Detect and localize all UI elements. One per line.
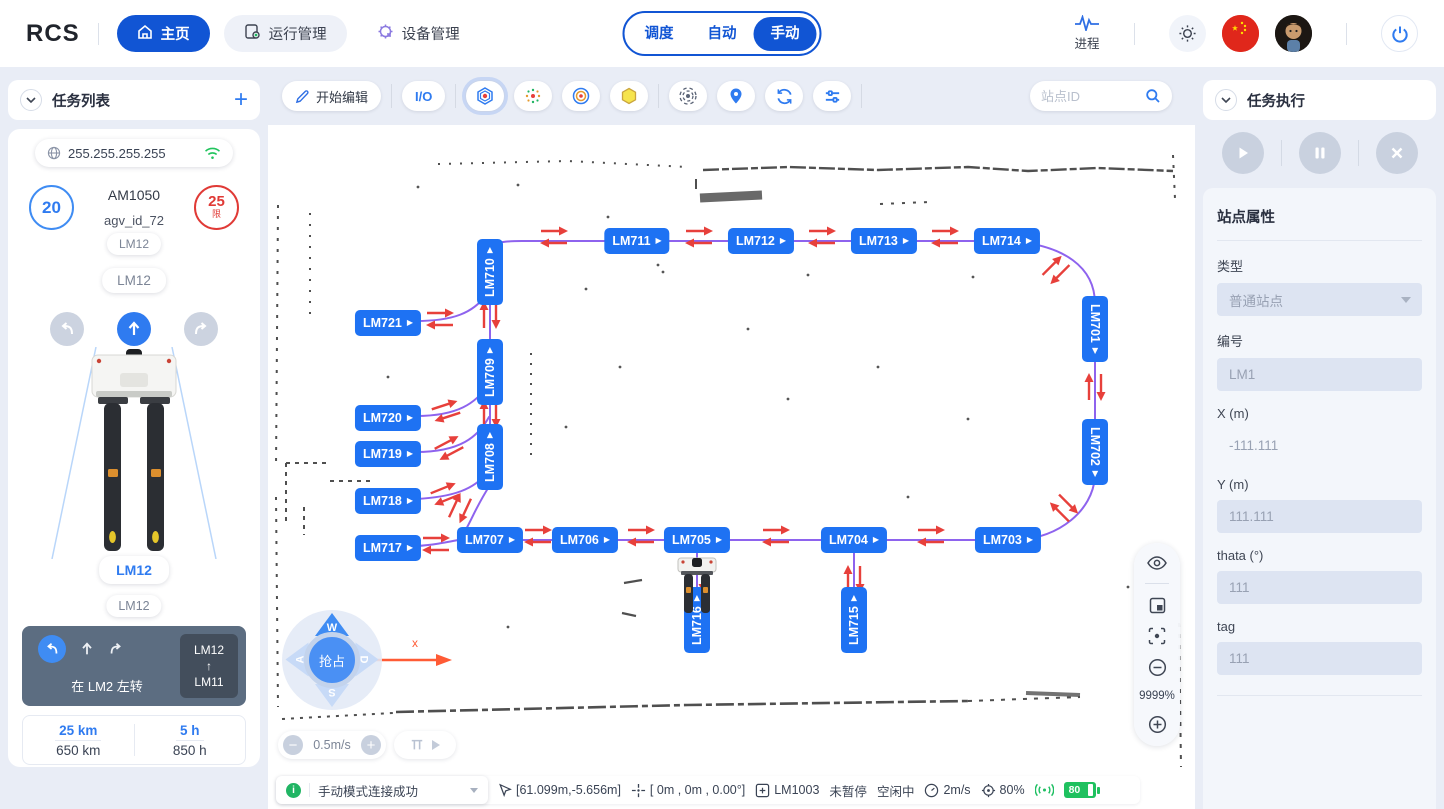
- target-rings-icon: [571, 86, 591, 106]
- field-label: X (m): [1217, 406, 1422, 421]
- station-arrow-icon: ▶: [1027, 536, 1033, 544]
- hexagon-node-icon: [475, 86, 495, 106]
- map-panel: x LM711▶LM712▶LM713▶LM714▶LM710▶LM721▶LM…: [268, 67, 1195, 809]
- seize-control-button[interactable]: 抢占: [304, 632, 360, 688]
- pause-button[interactable]: [1299, 132, 1341, 174]
- station-lm720[interactable]: LM720▶: [355, 405, 421, 431]
- gear-icon: [377, 23, 394, 44]
- language-flag-button[interactable]: [1222, 15, 1259, 52]
- home-icon: [137, 24, 153, 44]
- trip-hours: 5 h: [176, 723, 204, 741]
- station-lm714[interactable]: LM714▶: [974, 228, 1040, 254]
- map-view-controls: 9999%: [1134, 543, 1180, 746]
- route-to: LM11: [194, 674, 223, 690]
- station-properties-panel: 站点属性 类型普通站点编号LM1X (m)-111.111Y (m)111.11…: [1203, 188, 1436, 809]
- route-box: LM12 ↑ LM11: [180, 634, 238, 698]
- left-sidebar: 任务列表 + 255.255.255.255 20 25限 AM1050 agv…: [0, 67, 268, 809]
- route-from: LM12: [194, 642, 224, 658]
- station-label: LM719: [363, 447, 402, 461]
- total-distance: 650 km: [56, 743, 100, 758]
- station-lm706[interactable]: LM706▶: [552, 527, 618, 553]
- panel-title: 站点属性: [1217, 206, 1422, 227]
- turn-left-button[interactable]: [50, 312, 84, 346]
- station-arrow-icon: ▶: [1026, 237, 1032, 245]
- lidar-button[interactable]: [669, 81, 707, 111]
- hint-straight-icon: [79, 641, 95, 657]
- station-lm704[interactable]: LM704▶: [821, 527, 887, 553]
- station-arrow-icon: ▶: [509, 536, 515, 544]
- refresh-icon: [775, 87, 794, 106]
- nav-devices[interactable]: 设备管理: [357, 15, 480, 52]
- task-exec-controls: [1203, 124, 1436, 182]
- station-arrow-icon: ▶: [850, 595, 858, 601]
- play-icon: [1235, 145, 1251, 161]
- localization-quality: 80%: [981, 783, 1025, 798]
- go-straight-button[interactable]: [117, 312, 151, 346]
- nav-operations-label: 运行管理: [269, 23, 327, 44]
- station-lm715[interactable]: LM715▶: [841, 587, 867, 653]
- task-exec-title: 任务执行: [1247, 90, 1305, 111]
- zoom-level: 9999%: [1139, 690, 1175, 702]
- station-arrow-icon: ▶: [407, 544, 413, 552]
- battery-indicator: 80: [1064, 782, 1096, 798]
- layer-target-button[interactable]: [562, 81, 600, 111]
- station-arrow-icon: ▶: [903, 237, 909, 245]
- station-arrow-icon: ▶: [407, 450, 413, 458]
- app-logo: RCS: [26, 20, 80, 48]
- vehicle-card: 255.255.255.255 20 25限 AM1050 agv_id_72 …: [8, 129, 260, 767]
- refresh-button[interactable]: [765, 81, 803, 111]
- field-label: tag: [1217, 619, 1422, 634]
- field-input-4[interactable]: 111: [1217, 571, 1422, 604]
- station-lm709[interactable]: LM709▶: [477, 339, 503, 405]
- station-arrow-icon: ▶: [486, 432, 494, 438]
- avatar-icon: [1275, 15, 1312, 52]
- chevron-down-icon: [1221, 97, 1231, 103]
- search-icon[interactable]: [1145, 88, 1161, 104]
- station-label: LM709: [483, 358, 497, 397]
- manual-joystick: W A D S 抢占: [282, 610, 382, 710]
- station-lm717[interactable]: LM717▶: [355, 535, 421, 561]
- speed-status: 2m/s: [924, 783, 970, 798]
- ip-address: 255.255.255.255: [68, 146, 197, 161]
- status-bar: i 手动模式连接成功 [61.099m,-5.656m] [ 0m , 0m ,…: [276, 776, 1140, 804]
- station-arrow-icon: ▶: [486, 347, 494, 353]
- mode-status-text: 手动模式连接成功: [318, 781, 462, 800]
- crosshair-icon: [631, 783, 646, 798]
- collapse-chevron[interactable]: [1215, 89, 1237, 111]
- field-label: thata (°): [1217, 548, 1422, 563]
- add-task-button[interactable]: +: [234, 90, 248, 110]
- turn-right-icon: [192, 320, 210, 338]
- station-arrow-icon: ▶: [716, 536, 722, 544]
- station-lm702[interactable]: LM702▶: [1082, 419, 1108, 485]
- nav-home[interactable]: 主页: [117, 15, 210, 52]
- station-label: LM705: [672, 533, 711, 547]
- robot-pose: [ 0m , 0m , 0.00°]: [631, 783, 745, 798]
- nav-home-label: 主页: [161, 23, 190, 44]
- field-label: 类型: [1217, 256, 1422, 275]
- globe-icon: [47, 146, 61, 160]
- station-lm703[interactable]: LM703▶: [975, 527, 1041, 553]
- station-label: LM707: [465, 533, 504, 547]
- layer-pointcloud-button[interactable]: [514, 81, 552, 111]
- turn-instruction: 在 LM2 左转: [32, 676, 182, 695]
- field-label: 编号: [1217, 331, 1422, 350]
- monitor-gear-icon: [244, 23, 261, 44]
- station-lm713[interactable]: LM713▶: [851, 228, 917, 254]
- station-tag-mid: LM12: [102, 268, 166, 293]
- hint-turn-left-icon: [38, 635, 66, 663]
- locate-pin-button[interactable]: [717, 81, 755, 111]
- center-focus-button[interactable]: [1148, 627, 1166, 645]
- vehicle-model: AM1050: [8, 187, 260, 203]
- station-label: LM708: [483, 443, 497, 482]
- info-icon: i: [286, 783, 301, 798]
- arrow-up-icon: [125, 320, 143, 338]
- plus-square-icon: [755, 783, 770, 798]
- power-icon: [1390, 24, 1410, 44]
- scatter-points-icon: [523, 86, 543, 106]
- station-arrow-icon: ▶: [656, 237, 662, 245]
- field-label: Y (m): [1217, 477, 1422, 492]
- station-arrow-icon: ▶: [407, 414, 413, 422]
- station-tag-small: LM12: [107, 233, 161, 255]
- station-label: LM713: [859, 234, 898, 248]
- field-input-1[interactable]: LM1: [1217, 358, 1422, 391]
- start-edit-label: 开始编辑: [316, 87, 368, 106]
- visibility-button[interactable]: [1147, 556, 1167, 570]
- chevron-down-icon: [26, 97, 36, 103]
- fork-control[interactable]: [394, 731, 456, 759]
- vehicle-ip: 255.255.255.255: [35, 139, 233, 167]
- map-toolbar: 开始编辑 I/O: [268, 67, 1195, 125]
- speed-increase-button[interactable]: +: [361, 735, 381, 755]
- chevron-down-icon: [470, 788, 478, 793]
- task-exec-header: 任务执行: [1203, 80, 1436, 120]
- station-label: LM711: [612, 234, 650, 248]
- cursor-position: [61.099m,-5.656m]: [498, 783, 621, 797]
- idle-state: 空闲中: [877, 781, 915, 800]
- pointer-icon: [498, 783, 512, 797]
- hint-turn-right-icon: [108, 641, 124, 657]
- start-edit-button[interactable]: 开始编辑: [282, 81, 381, 111]
- station-arrow-icon: ▶: [873, 536, 879, 544]
- station-label: LM702: [1088, 427, 1102, 466]
- speedometer-icon: [924, 783, 939, 798]
- field-input-5[interactable]: 111: [1217, 642, 1422, 675]
- speed-value: 0.5m/s: [313, 738, 351, 752]
- right-sidebar: 任务执行 站点属性 类型普通站点编号LM1X (m)-111.111Y (m)1…: [1195, 67, 1444, 809]
- radar-icon: [678, 86, 698, 106]
- field-plain-2: -111.111: [1217, 429, 1422, 462]
- user-avatar[interactable]: [1275, 15, 1312, 52]
- station-lm705[interactable]: LM705▶: [664, 527, 730, 553]
- nav-devices-label: 设备管理: [402, 23, 460, 44]
- divider: [1134, 23, 1135, 45]
- station-lm719[interactable]: LM719▶: [355, 441, 421, 467]
- mileage-stats: 25 km 650 km 5 h 850 h: [22, 715, 246, 765]
- trip-distance: 25 km: [55, 723, 101, 741]
- station-label: LM710: [483, 258, 497, 297]
- station-label: LM715: [847, 606, 861, 645]
- station-lm712[interactable]: LM712▶: [728, 228, 794, 254]
- station-arrow-icon: ▶: [1091, 471, 1099, 477]
- turn-left-icon: [58, 320, 76, 338]
- front-station-tag: LM12: [99, 556, 169, 584]
- power-button[interactable]: [1381, 15, 1418, 52]
- location-pin-icon: [727, 87, 745, 105]
- layer-stations-button[interactable]: [466, 81, 504, 111]
- station-lm707[interactable]: LM707▶: [457, 527, 523, 553]
- speed-control: − 0.5m/s +: [278, 731, 386, 759]
- station-arrow-icon: ▶: [407, 497, 413, 505]
- close-icon: [1390, 146, 1404, 160]
- route-arrow: ↑: [206, 658, 212, 674]
- theme-toggle-button[interactable]: [1169, 15, 1206, 52]
- china-flag-icon: [1222, 15, 1259, 52]
- station-lm721[interactable]: LM721▶: [355, 310, 421, 336]
- mode-auto[interactable]: 自动: [691, 17, 754, 51]
- station-label: LM720: [363, 411, 402, 425]
- station-search: [1030, 81, 1172, 111]
- pulse-icon: [1074, 15, 1100, 31]
- station-lm718[interactable]: LM718▶: [355, 488, 421, 514]
- field-select-0[interactable]: 普通站点: [1217, 283, 1422, 316]
- collapse-chevron[interactable]: [20, 89, 42, 111]
- station-search-input[interactable]: [1041, 89, 1145, 104]
- play-button[interactable]: [1222, 132, 1264, 174]
- station-label: LM704: [829, 533, 868, 547]
- sun-icon: [1178, 24, 1197, 43]
- station-label: LM706: [560, 533, 599, 547]
- filter-settings-button[interactable]: [813, 81, 851, 111]
- battery-percent: 80: [1069, 784, 1081, 796]
- top-bar: RCS 主页 运行管理 设备管理 调度 自动 手动 进程: [0, 0, 1444, 67]
- map-robot-icon[interactable]: [677, 557, 717, 615]
- minimap-button[interactable]: [1149, 597, 1166, 614]
- pause-state: 未暂停: [829, 781, 867, 800]
- speed-decrease-button[interactable]: −: [283, 735, 303, 755]
- station-label: LM703: [983, 533, 1022, 547]
- zoom-out-button[interactable]: [1148, 658, 1167, 677]
- navigation-hint-panel: 在 LM2 左转 LM12 ↑ LM11: [22, 626, 246, 706]
- layer-area-button[interactable]: [610, 81, 648, 111]
- nav-operations[interactable]: 运行管理: [224, 15, 347, 52]
- station-arrow-icon: ▶: [604, 536, 610, 544]
- station-lm710[interactable]: LM710▶: [477, 239, 503, 305]
- pause-icon: [1313, 146, 1327, 160]
- station-label: LM712: [736, 234, 775, 248]
- play-small-icon: [431, 739, 441, 751]
- pencil-icon: [295, 89, 310, 104]
- fork-icon: [410, 738, 424, 752]
- station-label: LM718: [363, 494, 402, 508]
- signal-icon: [1035, 783, 1054, 797]
- mode-toggle: 调度 自动 手动: [623, 11, 822, 56]
- station-lm701[interactable]: LM701▶: [1082, 296, 1108, 362]
- task-list-header: 任务列表 +: [8, 80, 260, 120]
- process-label: 进程: [1074, 33, 1099, 52]
- station-label: LM714: [982, 234, 1021, 248]
- sliders-icon: [823, 87, 842, 106]
- turn-right-button[interactable]: [184, 312, 218, 346]
- mode-status-dropdown[interactable]: i 手动模式连接成功: [276, 776, 488, 804]
- divider: [1346, 23, 1347, 45]
- station-label: LM717: [363, 541, 402, 555]
- agv-id: agv_id_72: [8, 213, 260, 228]
- io-button[interactable]: I/O: [402, 81, 445, 111]
- wifi-icon: [204, 147, 221, 160]
- station-label: LM701: [1088, 304, 1102, 343]
- process-button[interactable]: 进程: [1074, 15, 1100, 52]
- zoom-in-button[interactable]: [1148, 715, 1167, 734]
- current-station: LM1003: [755, 783, 819, 798]
- mode-dispatch[interactable]: 调度: [628, 17, 691, 51]
- total-hours: 850 h: [173, 743, 207, 758]
- station-arrow-icon: ▶: [486, 247, 494, 253]
- station-arrow-icon: ▶: [1091, 348, 1099, 354]
- yellow-hexagon-icon: [619, 86, 639, 106]
- locate-icon: [981, 783, 996, 798]
- cancel-button[interactable]: [1376, 132, 1418, 174]
- field-input-3[interactable]: 111.111: [1217, 500, 1422, 533]
- front-station-tag2: LM12: [106, 595, 161, 617]
- station-arrow-icon: ▶: [780, 237, 786, 245]
- task-list-title: 任务列表: [52, 90, 110, 111]
- station-lm711[interactable]: LM711▶: [604, 228, 669, 254]
- mode-manual[interactable]: 手动: [754, 17, 817, 51]
- chevron-down-icon: [1401, 297, 1411, 303]
- station-label: LM721: [363, 316, 402, 330]
- divider: [98, 23, 99, 45]
- station-lm708[interactable]: LM708▶: [477, 424, 503, 490]
- station-arrow-icon: ▶: [407, 319, 413, 327]
- forklift-vehicle-image: [34, 347, 234, 559]
